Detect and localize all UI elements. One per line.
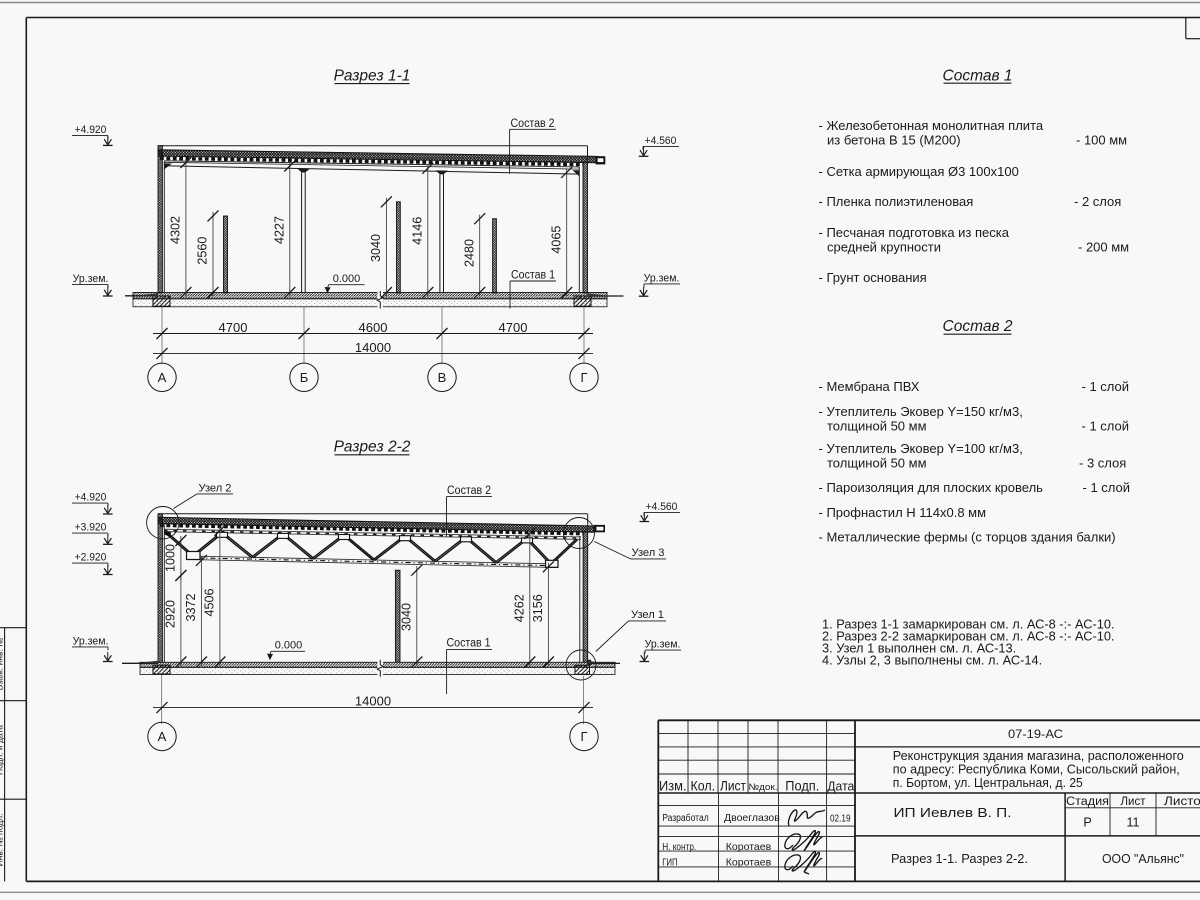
svg-text:4227: 4227	[273, 216, 287, 244]
svg-text:3040: 3040	[400, 603, 414, 631]
svg-text:4262: 4262	[512, 594, 526, 622]
svg-text:- Песчаная подготовка из песка: - Песчаная подготовка из песка	[819, 225, 1010, 240]
svg-text:4506: 4506	[203, 588, 217, 616]
svg-text:Подп.: Подп.	[785, 778, 819, 793]
svg-text:02.19: 02.19	[830, 813, 851, 824]
svg-text:Коротаев: Коротаев	[726, 856, 772, 868]
svg-text:А: А	[158, 729, 167, 744]
svg-text:- Утеплитель Эковер Y=150 кг/м: - Утеплитель Эковер Y=150 кг/м3,	[819, 404, 1023, 419]
svg-text:3156: 3156	[531, 594, 545, 622]
svg-text:Состав 1: Состав 1	[943, 67, 1013, 84]
svg-text:Лист: Лист	[720, 778, 746, 793]
svg-text:Ур.зем.: Ур.зем.	[644, 272, 680, 284]
svg-text:Состав 1: Состав 1	[447, 637, 491, 649]
svg-text:- 1 слой: - 1 слой	[1083, 480, 1131, 495]
svg-text:4302: 4302	[169, 216, 183, 244]
svg-text:ГИП: ГИП	[662, 857, 678, 868]
svg-text:Стадия: Стадия	[1066, 796, 1109, 808]
svg-text:07-19-АС: 07-19-АС	[1008, 727, 1064, 741]
svg-text:Дата: Дата	[827, 778, 855, 793]
svg-text:Состав 2: Состав 2	[447, 485, 491, 497]
svg-text:4065: 4065	[549, 226, 563, 254]
svg-text:11: 11	[1127, 816, 1140, 830]
svg-text:Узел 3: Узел 3	[632, 547, 665, 559]
svg-text:по адресу: Республика Коми, Сы: по адресу: Республика Коми, Сысольский р…	[893, 763, 1180, 777]
svg-text:3372: 3372	[184, 593, 198, 621]
svg-text:+4.920: +4.920	[75, 124, 107, 136]
svg-text:2920: 2920	[164, 600, 178, 628]
svg-text:Лист: Лист	[1121, 796, 1147, 808]
svg-text:Узел 2: Узел 2	[199, 483, 232, 495]
svg-text:4. Узлы 2, 3 выполнены см. л.: 4. Узлы 2, 3 выполнены см. л. АС-14.	[822, 653, 1042, 668]
svg-text:- Утеплитель Эковер Y=100 кг/м: - Утеплитель Эковер Y=100 кг/м3,	[819, 441, 1023, 456]
svg-text:Р: Р	[1083, 816, 1091, 830]
svg-text:Г: Г	[580, 729, 587, 744]
svg-text:Ур.зем.: Ур.зем.	[73, 635, 109, 647]
svg-text:4700: 4700	[499, 320, 528, 335]
svg-text:1000: 1000	[164, 544, 178, 572]
svg-text:Кол.: Кол.	[691, 778, 716, 793]
svg-text:0.000: 0.000	[333, 273, 361, 285]
svg-text:Инв. № подл.: Инв. № подл.	[0, 814, 5, 867]
svg-text:Разработал: Разработал	[662, 813, 709, 824]
svg-text:А: А	[158, 370, 167, 385]
svg-text:- Металлические фермы (с торцо: - Металлические фермы (с торцов здания б…	[819, 530, 1116, 545]
svg-text:2480: 2480	[462, 239, 476, 267]
svg-text:Н. контр.: Н. контр.	[662, 842, 696, 853]
svg-text:- 2 слоя: - 2 слоя	[1074, 194, 1121, 209]
svg-text:из бетона В 15 (М200): из бетона В 15 (М200)	[827, 132, 961, 147]
svg-text:Подп. и дата: Подп. и дата	[0, 725, 5, 775]
svg-text:Состав 2: Состав 2	[943, 318, 1013, 335]
svg-text:толщиной 50 мм: толщиной 50 мм	[827, 455, 927, 470]
svg-text:толщиной 50 мм: толщиной 50 мм	[827, 418, 927, 433]
svg-text:Разрез 2-2: Разрез 2-2	[334, 439, 411, 456]
svg-text:+4.560: +4.560	[645, 135, 677, 147]
svg-text:- Грунт основания: - Грунт основания	[819, 270, 927, 285]
svg-text:- Пароизоляция для плоских кро: - Пароизоляция для плоских кровель	[819, 480, 1044, 495]
svg-text:- 1 слой: - 1 слой	[1082, 418, 1130, 433]
svg-text:Разрез 1-1: Разрез 1-1	[334, 67, 411, 84]
svg-text:средней крупности: средней крупности	[827, 239, 941, 254]
svg-text:Разрез 1-1. Разрез 2-2.: Разрез 1-1. Разрез 2-2.	[891, 852, 1028, 866]
svg-text:Взам. инв. №: Взам. инв. №	[0, 638, 5, 691]
svg-text:В: В	[438, 370, 447, 385]
svg-text:3040: 3040	[369, 234, 383, 262]
svg-text:Узел 1: Узел 1	[631, 609, 664, 621]
svg-text:Г: Г	[580, 370, 587, 385]
svg-text:+3.920: +3.920	[75, 522, 107, 534]
svg-text:- 3 слоя: - 3 слоя	[1079, 455, 1126, 470]
svg-text:Ур.зем.: Ур.зем.	[73, 273, 109, 285]
svg-text:0.000: 0.000	[275, 640, 303, 652]
svg-text:Коротаев: Коротаев	[726, 841, 772, 853]
svg-text:ИП Иевлев В. П.: ИП Иевлев В. П.	[894, 806, 1012, 820]
svg-text:- 100 мм: - 100 мм	[1076, 132, 1127, 147]
svg-text:п. Бортом, ул. Центральная, д.: п. Бортом, ул. Центральная, д. 25	[893, 776, 1083, 790]
svg-text:+2.920: +2.920	[75, 552, 107, 564]
svg-text:- Железобетонная монолитная п: - Железобетонная монолитная плита	[819, 118, 1044, 133]
svg-text:4600: 4600	[359, 320, 388, 335]
svg-text:Ур.зем.: Ур.зем.	[645, 639, 681, 651]
svg-text:№док.: №док.	[749, 782, 778, 793]
svg-text:Изм.: Изм.	[659, 778, 687, 793]
svg-text:- 1 слой: - 1 слой	[1082, 379, 1130, 394]
svg-text:+4.920: +4.920	[75, 492, 107, 504]
svg-text:2560: 2560	[196, 237, 210, 265]
svg-text:Б: Б	[300, 370, 309, 385]
svg-text:- Мембрана ПВХ: - Мембрана ПВХ	[819, 379, 920, 394]
svg-text:Листов: Листов	[1164, 796, 1200, 808]
svg-text:- 200 мм: - 200 мм	[1078, 239, 1129, 254]
svg-text:14000: 14000	[355, 340, 391, 355]
svg-text:4146: 4146	[411, 217, 425, 245]
svg-text:- Профнастил Н 114х0.8 мм: - Профнастил Н 114х0.8 мм	[819, 505, 987, 520]
svg-text:- Сетка армирующая Ø3 100х100: - Сетка армирующая Ø3 100х100	[819, 164, 1019, 179]
svg-text:- Пленка полиэтиленовая: - Пленка полиэтиленовая	[819, 194, 974, 209]
svg-text:Двоеглазов: Двоеглазов	[724, 812, 780, 824]
svg-text:Состав 2: Состав 2	[511, 118, 555, 130]
svg-text:Реконструкция здания магазина,: Реконструкция здания магазина, расположе…	[893, 749, 1184, 763]
svg-text:4700: 4700	[219, 320, 248, 335]
svg-text:+4.560: +4.560	[646, 501, 678, 513]
svg-text:ООО "Альянс": ООО "Альянс"	[1102, 852, 1184, 866]
svg-text:14000: 14000	[355, 693, 391, 708]
svg-text:Состав 1: Состав 1	[511, 269, 555, 281]
